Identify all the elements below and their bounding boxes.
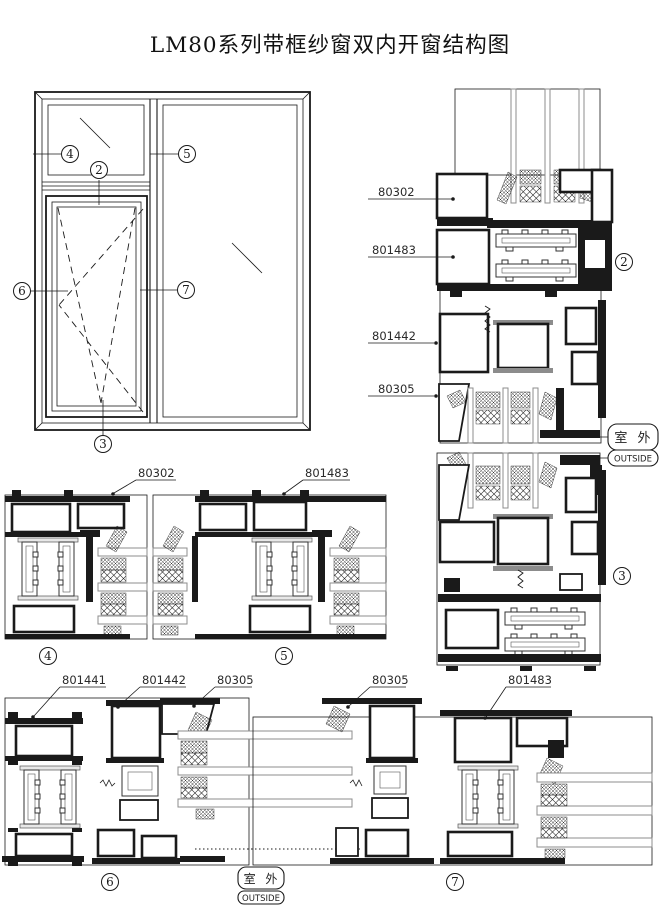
part-label: 80305 (378, 382, 415, 396)
balloon-5: 5 (179, 146, 196, 163)
balloon-2-section: 2 (616, 254, 633, 271)
part-label: 80302 (378, 185, 415, 199)
glazing-plan (178, 731, 360, 862)
svg-text:2: 2 (620, 255, 628, 269)
drawing-page: LM80系列带框纱窗双内开窗结构图 4 5 2 (0, 0, 659, 908)
glazing-plan-right (330, 526, 386, 635)
balloon-5-section: 5 (276, 648, 293, 665)
section-detail-6: 6 (2, 698, 360, 891)
frame-80305-profiles (322, 698, 434, 864)
balloon-7: 7 (178, 282, 195, 299)
svg-text:6: 6 (18, 284, 26, 298)
structure-drawing: LM80系列带框纱窗双内开窗结构图 4 5 2 (0, 0, 659, 908)
balloon-4-section: 4 (40, 648, 57, 665)
screen-channel (18, 538, 78, 600)
section-detail-5: 5 (153, 490, 386, 665)
section-detail-3: 3 (437, 452, 631, 671)
glazing-plan-right (520, 740, 652, 864)
outside-stamp-bottom: 室 外 OUTSIDE (238, 867, 284, 904)
svg-text:5: 5 (280, 649, 288, 663)
transom (42, 182, 150, 190)
balloon-7-section: 7 (447, 874, 464, 891)
screen-channel (252, 538, 312, 600)
balloon-3: 3 (95, 436, 112, 453)
part-label: 801483 (372, 243, 416, 257)
outside-label-en: OUTSIDE (614, 455, 652, 465)
glazing-plan (98, 526, 147, 635)
screen-channel (458, 766, 518, 828)
section-detail-4: 4 (5, 490, 147, 665)
svg-text:6: 6 (106, 875, 114, 889)
part-label: 801483 (508, 673, 552, 687)
part-label: 80305 (217, 673, 254, 687)
section-detail-7: 7 (253, 698, 652, 891)
part-label: 801483 (305, 466, 349, 480)
elevation-view: 4 5 2 6 7 3 (14, 92, 311, 453)
part-label: 801441 (62, 673, 106, 687)
section-detail-2: 80302 801483 801442 80305 2 (368, 89, 633, 443)
balloon-6-section: 6 (102, 874, 119, 891)
mid-row-labels: 80302 801483 (111, 466, 350, 496)
glass-mark-right (232, 243, 262, 273)
svg-text:3: 3 (99, 437, 107, 451)
outside-stamp-right: 室 外 OUTSIDE (600, 424, 658, 466)
screen-channel (20, 766, 80, 828)
part-label: 80305 (372, 673, 409, 687)
glazing-plan-left (153, 526, 187, 635)
balloon-2: 2 (91, 162, 108, 179)
balloon-6: 6 (14, 283, 31, 300)
screw-symbol (350, 780, 362, 786)
svg-text:7: 7 (451, 875, 459, 889)
svg-text:4: 4 (66, 147, 74, 161)
outside-label-cn: 室 外 (244, 871, 281, 886)
svg-text:2: 2 (95, 163, 103, 177)
outside-label-cn: 室 外 (614, 430, 653, 446)
screw-symbol (518, 570, 523, 588)
balloon-4: 4 (62, 146, 79, 163)
glass-mark-upper (80, 118, 110, 148)
part-label: 801442 (142, 673, 186, 687)
part-label: 80302 (138, 466, 175, 480)
svg-text:3: 3 (618, 569, 626, 583)
drawing-title: LM80系列带框纱窗双内开窗结构图 (150, 33, 510, 58)
casement-sash (46, 196, 147, 417)
mullion (150, 99, 157, 423)
svg-text:4: 4 (44, 649, 52, 663)
balloon-3-section: 3 (614, 568, 631, 585)
outside-label-en: OUTSIDE (242, 894, 280, 904)
svg-text:7: 7 (182, 283, 190, 297)
svg-text:5: 5 (183, 147, 191, 161)
part-label: 801442 (372, 329, 416, 343)
screw-symbol (100, 780, 115, 786)
sill-frame-profiles (438, 574, 601, 671)
opening-direction-lines (58, 208, 143, 412)
